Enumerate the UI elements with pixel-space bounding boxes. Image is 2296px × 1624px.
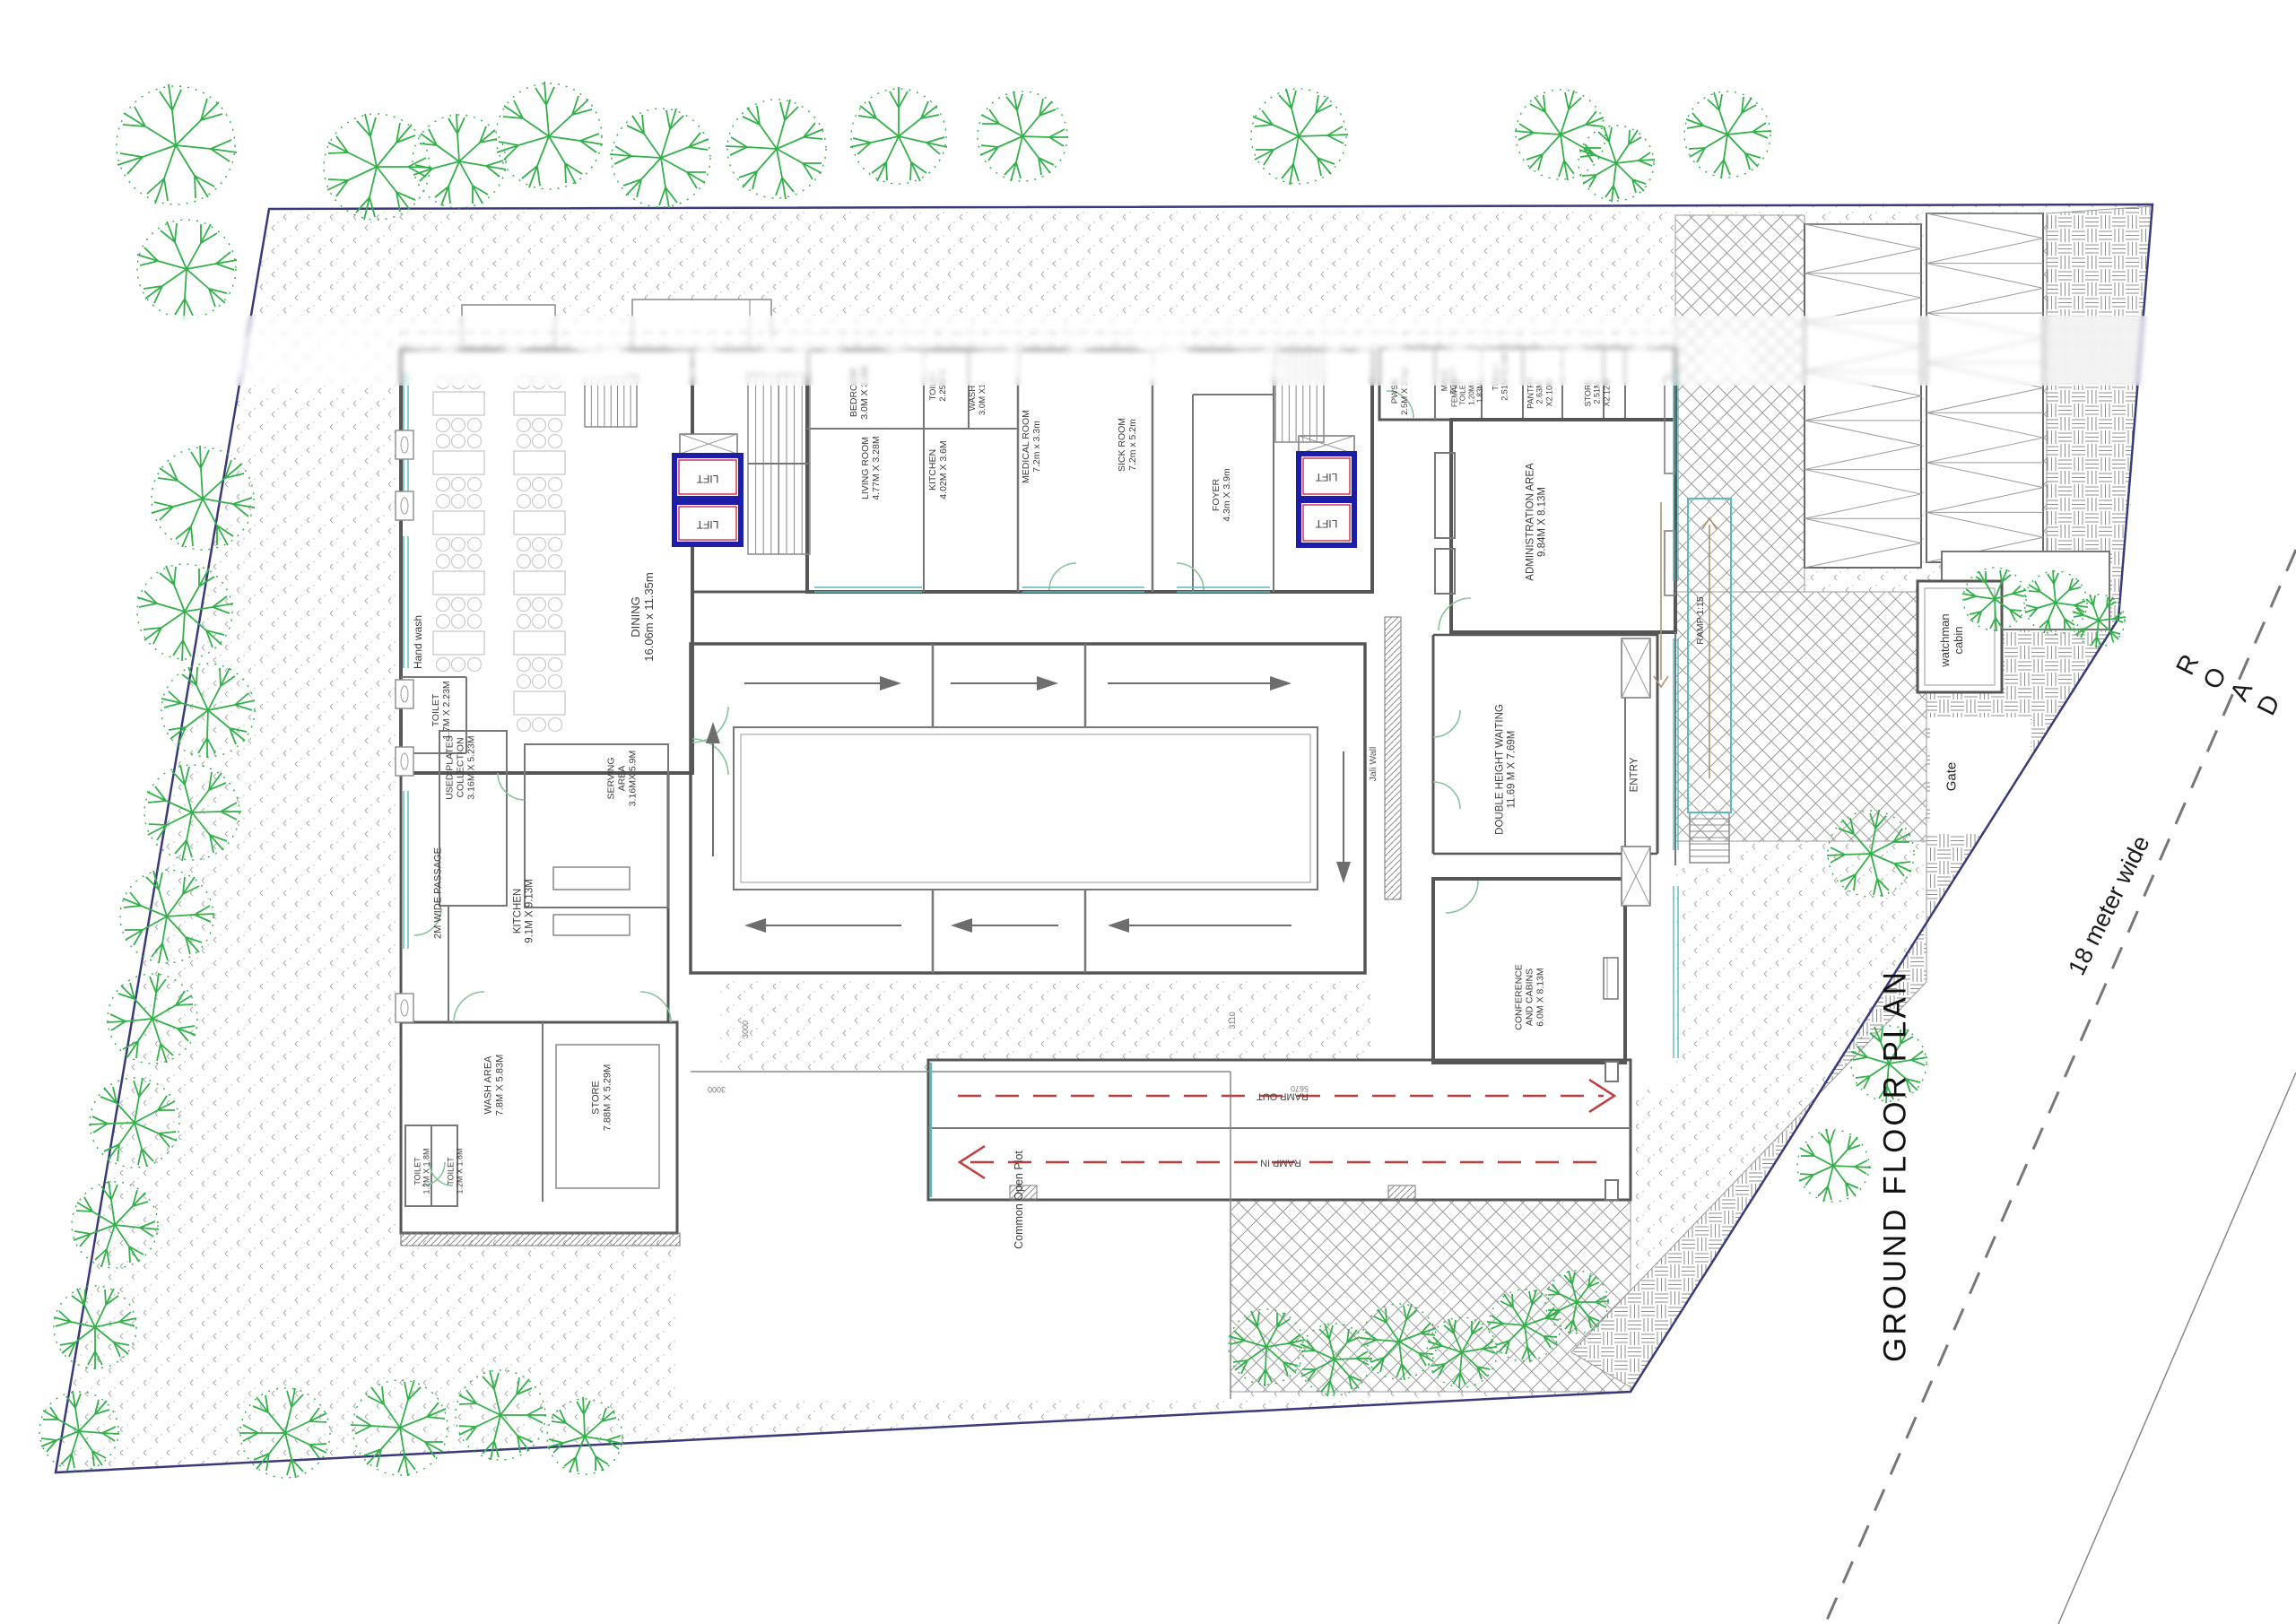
watermark-text: Samsara — [1127, 316, 1790, 386]
room-wash-guest: WASH 3.0M X1. — [968, 381, 987, 415]
room-toilet-bl2: TOILET 1.2M X 1.8M — [447, 1148, 465, 1194]
lift-3: LIFT — [1316, 470, 1338, 482]
room-toilet-dining: TOILET 1.7M X 2.23M — [430, 681, 452, 739]
room-entry: ENTRY — [1629, 758, 1640, 793]
room-store-left: STORE 7.88M X 5.29M — [590, 1064, 613, 1132]
road-width-label: 18 meter wide — [2063, 831, 2156, 980]
watermark-band: Samsara Samsara Samsara — [0, 316, 2296, 386]
floor-plan-canvas: DINING 16.06m x 11.35mHand washTOILET 1.… — [0, 0, 2296, 1624]
dim-3000-a: 3000 — [741, 1020, 750, 1038]
jali-wall: Jali Wall — [1368, 747, 1378, 782]
lift-4: LIFT — [1316, 517, 1338, 529]
room-kitchen-main: KITCHEN 9.1M X 9.13M — [513, 879, 537, 943]
dim-3000-b: 3000 — [708, 1085, 726, 1094]
room-foyer: FOYER 4.3m X 3.9m — [1211, 468, 1232, 522]
room-sick: SICK ROOM 7.2m x 5.2m — [1117, 418, 1138, 472]
gate: Gate — [1944, 762, 1959, 792]
ramp-115: RAMP 1:15 — [1695, 596, 1706, 645]
room-waiting: DOUBLE HEIGHT WAITING 11.69 M X 7.69M — [1495, 704, 1519, 835]
hand-wash: Hand wash — [413, 615, 425, 669]
lift-1: LIFT — [697, 472, 719, 484]
lift-2: LIFT — [697, 517, 719, 530]
room-kitchen-guest: KITCHEN 4.02M X 3.6M — [927, 440, 949, 499]
room-living: LIVING ROOM 4.77M X 3.28M — [860, 436, 882, 499]
room-dining: DINING 16.06m x 11.35m — [629, 572, 656, 661]
room-used-plates: USED PLATES COLLECTION 3.16M X 5.23M — [445, 735, 478, 800]
watchman-cabin: watchman cabin — [1938, 613, 1965, 666]
room-passage: 2M WIDE PASSAGE — [433, 847, 445, 939]
room-toilet-bl1: TOILET 1.2M X 1.8M — [413, 1148, 432, 1194]
dim-3110: 3110 — [1228, 1012, 1237, 1029]
room-wash-area: WASH AREA 7.8M X 5.83M — [483, 1055, 506, 1116]
road-name: R O A D — [2164, 623, 2296, 734]
room-serving-area: SERVING AREA 3.16MX 5.9M — [606, 751, 639, 806]
label-layer: DINING 16.06m x 11.35mHand washTOILET 1.… — [0, 0, 2296, 1624]
room-medical: MEDICAL ROOM 7.2m x 3.3m — [1021, 410, 1042, 483]
dim-5670: 5670 — [1291, 1084, 1309, 1093]
common-open-plot: Common Open Plot — [1013, 1151, 1026, 1249]
room-admin: ADMINISTRATION AREA 9.84M X 8.13M — [1526, 463, 1550, 580]
room-conference: CONFERENCE AND CABINS 6.0M X 8.13M — [1514, 964, 1547, 1030]
drawing-title: GROUND FLOOR PLAN — [1878, 969, 1915, 1362]
ramp-in: RAMP IN — [1260, 1157, 1301, 1168]
